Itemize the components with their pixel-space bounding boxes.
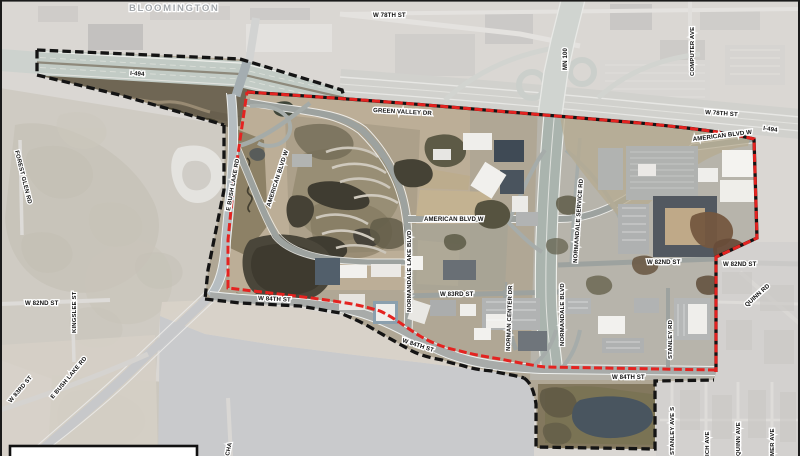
svg-text:NORMANDALE LAKE BLVD: NORMANDALE LAKE BLVD [407,231,413,312]
svg-text:STANLEY RD: STANLEY RD [668,320,674,359]
svg-text:I-494: I-494 [130,70,145,78]
svg-text:W 83RD ST: W 83RD ST [440,291,474,298]
svg-text:W 84TH ST: W 84TH ST [612,374,645,381]
svg-text:AMERICAN BLVD W: AMERICAN BLVD W [424,216,484,223]
svg-text:ICH AVE: ICH AVE [705,431,711,456]
svg-text:QUINN AVE: QUINN AVE [736,422,742,456]
svg-text:KINGSLEE ST: KINGSLEE ST [72,291,78,333]
svg-text:W 78TH ST: W 78TH ST [373,12,406,19]
svg-text:MER AVE: MER AVE [770,428,776,456]
svg-text:W 82ND ST: W 82ND ST [647,259,681,266]
svg-text:NORMANDALE BLVD: NORMANDALE BLVD [560,283,566,346]
svg-text:MN 100: MN 100 [562,48,569,70]
svg-text:W 82ND ST: W 82ND ST [723,261,757,268]
svg-text:BLOOMINGTON: BLOOMINGTON [129,3,219,14]
svg-text:STANLEY AVE S: STANLEY AVE S [670,407,676,455]
svg-text:COMPUTER AVE: COMPUTER AVE [690,27,696,76]
svg-text:W 82ND ST: W 82ND ST [25,300,59,307]
